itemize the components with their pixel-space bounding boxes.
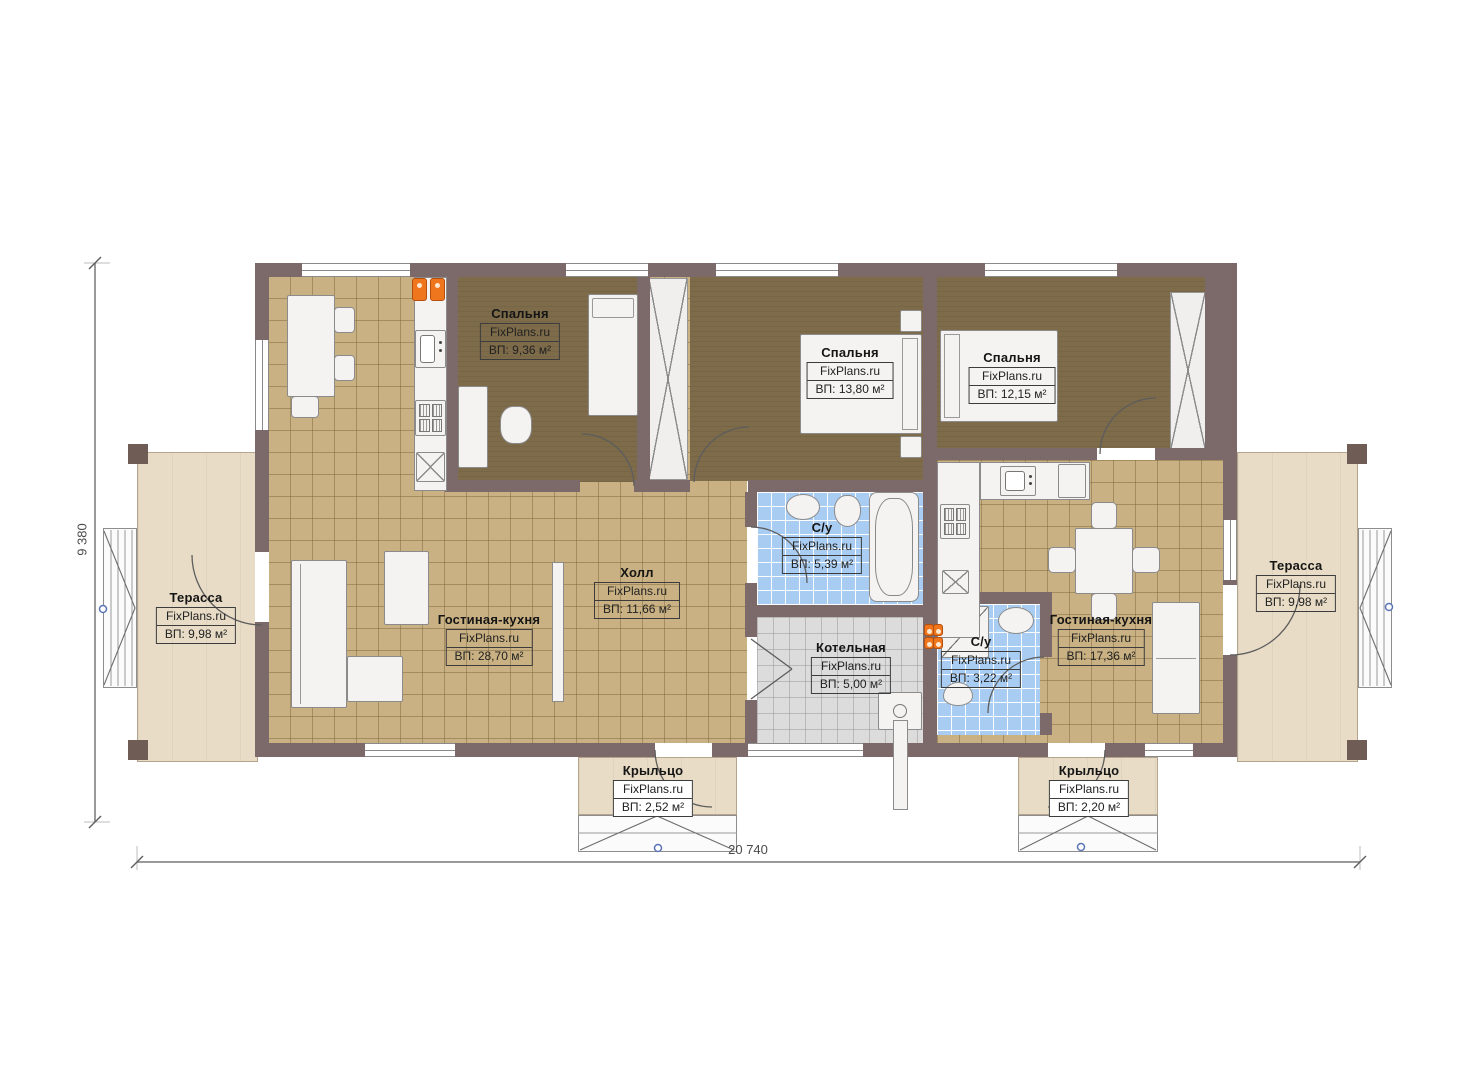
room-name: Гостиная-кухня: [438, 612, 540, 627]
room-info-box: FixPlans.ru ВП: 9,98 м²: [1256, 575, 1336, 612]
window: [302, 263, 410, 277]
room-label-brand: FixPlans.ru: [1257, 576, 1335, 594]
room-label-porch-left: Крыльцо FixPlans.ru ВП: 2,52 м²: [613, 763, 693, 817]
wardrobe-icon: [648, 278, 688, 480]
window: [985, 263, 1117, 277]
steps-porch-right: [1018, 815, 1158, 852]
room-name: С/у: [941, 634, 1021, 649]
room-label-bedroom-2: Спальня FixPlans.ru ВП: 13,80 м²: [807, 345, 894, 399]
room-label-brand: FixPlans.ru: [812, 658, 890, 676]
terrace-post: [128, 740, 148, 760]
window: [1145, 743, 1193, 757]
room-area: ВП: 5,00 м²: [812, 676, 890, 693]
room-label-living-kitchen-right: Гостиная-кухня FixPlans.ru ВП: 17,36 м²: [1050, 612, 1152, 666]
boiler-flue-pipe: [893, 720, 908, 810]
steps-terrace-left: [103, 528, 137, 688]
window: [716, 263, 838, 277]
kitchen-table: [1075, 528, 1133, 594]
room-label-brand: FixPlans.ru: [614, 781, 692, 799]
terrace-post: [1347, 740, 1367, 760]
wall-interior: [1155, 448, 1225, 460]
room-area: ВП: 5,39 м²: [783, 556, 861, 573]
room-label-brand: FixPlans.ru: [595, 583, 679, 601]
room-name: Гостиная-кухня: [1050, 612, 1152, 627]
terrace-post: [1347, 444, 1367, 464]
kitchen-counter: [937, 462, 980, 638]
heater-icon: [430, 278, 445, 301]
door-opening-terrace-left: [255, 552, 269, 622]
door-opening-porch-left: [655, 743, 712, 757]
sofa: [1152, 602, 1200, 714]
room-info-box: FixPlans.ru ВП: 28,70 м²: [446, 629, 533, 666]
room-name: Спальня: [807, 345, 894, 360]
wall-corner-column: [1205, 263, 1237, 460]
room-name: Крыльцо: [613, 763, 693, 778]
room-name: Крыльцо: [1049, 763, 1129, 778]
window: [748, 743, 863, 757]
room-label-living-kitchen-left: Гостиная-кухня FixPlans.ru ВП: 28,70 м²: [438, 612, 540, 666]
window: [255, 340, 269, 430]
floor-plan-page: { "brand_watermark": "FixPlans.ru", "roo…: [0, 0, 1474, 1080]
appliance-icon: [1058, 464, 1086, 498]
room-info-box: FixPlans.ru ВП: 5,00 м²: [811, 657, 891, 694]
chair: [1132, 547, 1160, 573]
room-area: ВП: 17,36 м²: [1059, 648, 1144, 665]
bathtub-icon: [869, 492, 919, 602]
room-info-box: FixPlans.ru ВП: 9,98 м²: [156, 607, 236, 644]
room-name: Спальня: [969, 350, 1056, 365]
heater-icon: [412, 278, 427, 301]
room-label-brand: FixPlans.ru: [942, 652, 1020, 670]
room-label-bathroom-1: С/у FixPlans.ru ВП: 5,39 м²: [782, 520, 862, 574]
nightstand: [900, 436, 922, 458]
kitchen-sink: [415, 330, 446, 368]
room-area: ВП: 9,36 м²: [481, 342, 559, 359]
wall-interior: [745, 700, 757, 744]
sliding-door: [552, 562, 564, 702]
desk: [458, 386, 488, 468]
room-area: ВП: 9,98 м²: [1257, 594, 1335, 611]
room-label-porch-right: Крыльцо FixPlans.ru ВП: 2,20 м²: [1049, 763, 1129, 817]
wall-interior: [637, 276, 650, 492]
terrace-post: [128, 444, 148, 464]
window: [566, 263, 648, 277]
wall-interior: [923, 276, 937, 744]
coffee-table: [384, 551, 429, 625]
bed-single: [588, 294, 638, 416]
chair: [1048, 547, 1076, 573]
room-info-box: FixPlans.ru ВП: 2,20 м²: [1049, 780, 1129, 817]
room-info-box: FixPlans.ru ВП: 12,15 м²: [969, 367, 1056, 404]
chair: [334, 307, 355, 333]
room-label-terrace-right: Терасса FixPlans.ru ВП: 9,98 м²: [1256, 558, 1336, 612]
wall-interior: [445, 480, 580, 492]
room-label-brand: FixPlans.ru: [447, 630, 532, 648]
appliance-icon: [942, 570, 969, 594]
wardrobe-icon: [1170, 292, 1206, 449]
room-info-box: FixPlans.ru ВП: 3,22 м²: [941, 651, 1021, 688]
room-info-box: FixPlans.ru ВП: 13,80 м²: [807, 362, 894, 399]
appliance-icon: [416, 452, 445, 482]
room-label-boiler-room: Котельная FixPlans.ru ВП: 5,00 м²: [811, 640, 891, 694]
corner-sofa: [291, 560, 347, 708]
room-area: ВП: 28,70 м²: [447, 648, 532, 665]
room-area: ВП: 11,66 м²: [595, 601, 679, 618]
room-info-box: FixPlans.ru ВП: 11,66 м²: [594, 582, 680, 619]
room-name: Спальня: [480, 306, 560, 321]
room-label-brand: FixPlans.ru: [481, 324, 559, 342]
room-label-brand: FixPlans.ru: [783, 538, 861, 556]
room-area: ВП: 2,52 м²: [614, 799, 692, 816]
room-info-box: FixPlans.ru ВП: 17,36 м²: [1058, 629, 1145, 666]
chair: [334, 355, 355, 381]
wall-interior: [757, 605, 923, 617]
dimension-width-label: 20 740: [728, 842, 768, 857]
sink-icon: [786, 494, 820, 520]
room-label-terrace-left: Терасса FixPlans.ru ВП: 9,98 м²: [156, 590, 236, 644]
room-name: Котельная: [811, 640, 891, 655]
office-chair: [500, 406, 532, 444]
room-name: Терасса: [1256, 558, 1336, 573]
steps-porch-left: [578, 815, 737, 852]
nightstand: [900, 310, 922, 332]
room-label-brand: FixPlans.ru: [157, 608, 235, 626]
wall-interior: [745, 492, 757, 527]
stove-icon: [415, 400, 446, 436]
room-label-bathroom-2: С/у FixPlans.ru ВП: 3,22 м²: [941, 634, 1021, 688]
room-area: ВП: 13,80 м²: [808, 381, 893, 398]
stove-icon: [940, 504, 970, 539]
dining-table: [287, 295, 335, 397]
room-name: С/у: [782, 520, 862, 535]
window: [1223, 520, 1237, 580]
room-area: ВП: 2,20 м²: [1050, 799, 1128, 816]
steps-terrace-right: [1358, 528, 1392, 688]
door-opening-porch-right: [1048, 743, 1105, 757]
wall-exterior-left: [255, 263, 269, 757]
room-label-brand: FixPlans.ru: [1050, 781, 1128, 799]
door-opening-terrace-right: [1223, 585, 1237, 655]
room-info-box: FixPlans.ru ВП: 2,52 м²: [613, 780, 693, 817]
room-area: ВП: 3,22 м²: [942, 670, 1020, 687]
room-area: ВП: 12,15 м²: [970, 386, 1055, 403]
wall-interior: [745, 583, 757, 637]
sink-icon: [998, 607, 1034, 634]
kitchen-sink: [1000, 466, 1036, 496]
chair: [1091, 502, 1117, 529]
room-label-brand: FixPlans.ru: [808, 363, 893, 381]
wall-interior: [748, 480, 923, 492]
room-name: Холл: [594, 565, 680, 580]
corner-sofa: [347, 656, 403, 702]
room-label-brand: FixPlans.ru: [1059, 630, 1144, 648]
room-name: Терасса: [156, 590, 236, 605]
wall-interior: [937, 448, 1097, 460]
room-label-hall: Холл FixPlans.ru ВП: 11,66 м²: [594, 565, 680, 619]
room-label-bedroom-1: Спальня FixPlans.ru ВП: 9,36 м²: [480, 306, 560, 360]
room-info-box: FixPlans.ru ВП: 9,36 м²: [480, 323, 560, 360]
room-area: ВП: 9,98 м²: [157, 626, 235, 643]
room-label-brand: FixPlans.ru: [970, 368, 1055, 386]
window: [365, 743, 455, 757]
room-label-bedroom-3: Спальня FixPlans.ru ВП: 12,15 м²: [969, 350, 1056, 404]
chair: [291, 396, 319, 418]
dimension-height-label: 9 380: [75, 500, 90, 580]
room-info-box: FixPlans.ru ВП: 5,39 м²: [782, 537, 862, 574]
wall-interior: [1040, 713, 1052, 735]
